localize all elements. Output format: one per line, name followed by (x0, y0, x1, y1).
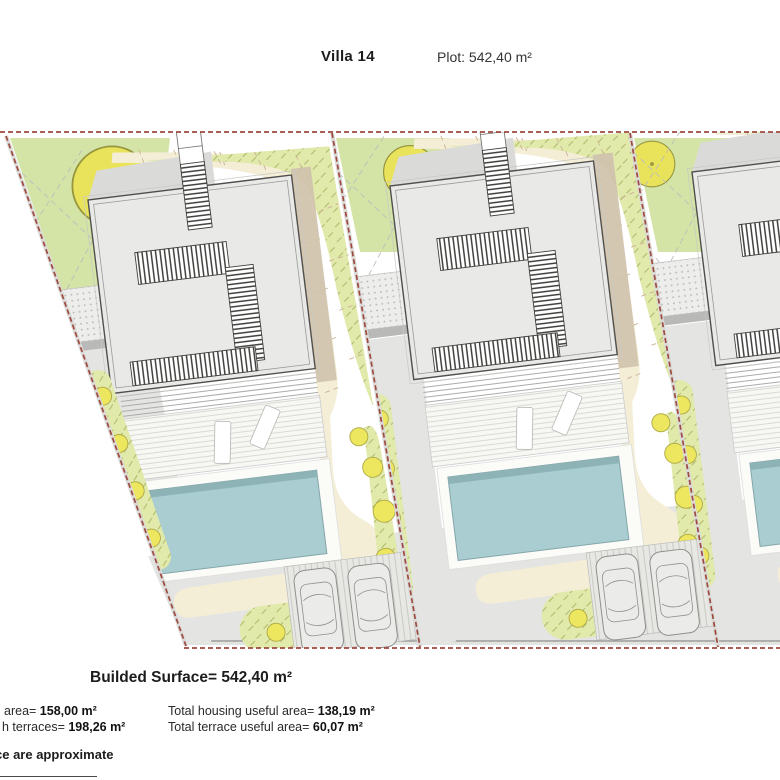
terrace-useful-row: Total terrace useful area= 60,07 m² (168, 720, 363, 734)
builded-surface: Builded Surface= 542,40 m² (90, 669, 292, 687)
table-rule (0, 776, 97, 777)
housing-area-value: 158,00 m² (40, 704, 97, 718)
housing-area-label: area= (4, 704, 40, 718)
terraces-area-label: h terraces= (2, 720, 68, 734)
terraces-area-row: h terraces= 198,26 m² (2, 720, 125, 734)
housing-useful-value: 138,19 m² (318, 704, 375, 718)
housing-area-row: area= 158,00 m² (4, 704, 97, 718)
plan-sheet: Villa 14 Plot: 542,40 m² (0, 0, 780, 780)
site-plan (0, 0, 780, 780)
terrace-useful-value: 60,07 m² (313, 720, 363, 734)
approximate-footnote: ce are approximate (0, 747, 114, 762)
terraces-area-value: 198,26 m² (68, 720, 125, 734)
housing-useful-row: Total housing useful area= 138,19 m² (168, 704, 375, 718)
housing-useful-label: Total housing useful area= (168, 704, 318, 718)
terrace-useful-label: Total terrace useful area= (168, 720, 313, 734)
